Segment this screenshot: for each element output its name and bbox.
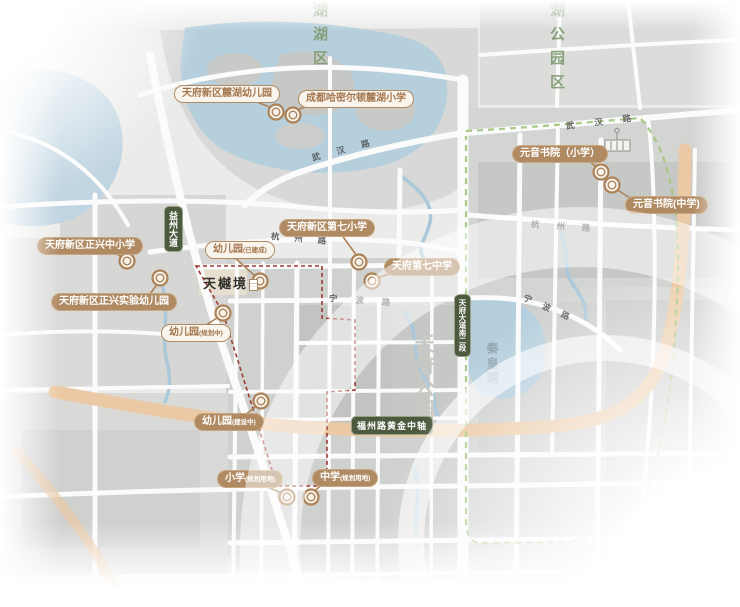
location-map: 湖湖区 湖公园区 天府公园 秦皇湖 益州大道 天府大道南二段 福州路黄金中轴 武… [0,0,740,607]
school-status: (规划用地) [340,475,370,482]
school-name: 成都哈密尔顿麓湖小学 [306,93,406,104]
school-marker [269,105,284,120]
school-status: (规划中) [199,330,223,337]
label-middle-planned-land: 中学(规划用地) [312,469,378,487]
school-name: 幼儿园 [169,327,199,338]
school-marker [216,306,231,321]
school-name: 元音书院（小学） [520,148,600,159]
label-luhu-kindergarten: 天府新区麓湖幼儿园 [174,85,280,103]
label-no7-primary: 天府新区第七小学 [279,219,375,237]
school-marker [594,165,609,180]
project-label: 天樾境 [203,273,258,292]
label-kindergarten-built: 幼儿园(已建成) [205,241,275,259]
project-name-text: 天樾境 [203,276,248,291]
school-name: 天府新区第七小学 [287,222,367,233]
school-marker [365,274,380,289]
road-pill-yizhou-avenue: 益州大道 [164,206,183,252]
school-name: 幼儿园 [213,244,243,255]
school-marker [280,490,295,505]
school-marker [286,108,301,123]
school-status: (规划用地) [245,476,275,483]
school-status: (建设中) [232,419,256,426]
district-label-park: 湖公园区 [546,2,567,98]
school-marker [254,394,269,409]
school-marker [605,178,620,193]
label-no7-middle: 天府第七中学 [384,258,460,276]
school-name: 天府新区麓湖幼儿园 [182,88,272,99]
school-name: 幼儿园 [202,416,232,427]
label-kindergarten-planned: 幼儿园(规划中) [161,324,231,342]
label-yuanyin-primary: 元音书院（小学） [512,145,608,163]
school-name: 天府新区正兴中小学 [45,240,135,251]
road-pill-fuzhou-axis: 福州路黄金中轴 [351,416,433,435]
school-status: (已建成) [243,247,267,254]
label-zhengxing-kindergarten: 天府新区正兴实验幼儿园 [51,293,177,311]
school-marker [153,271,168,286]
label-hamilton-primary: 成都哈密尔顿麓湖小学 [298,90,414,108]
school-name: 天府新区正兴实验幼儿园 [59,296,169,307]
project-logo-icon [249,279,258,291]
qinhuang-lake-label: 秦皇湖 [484,342,501,387]
school-name: 小学 [225,473,245,484]
school-name: 元音书院(中学) [633,199,700,210]
school-marker [304,490,319,505]
road-pill-tianfu-avenue: 天府大道南二段 [454,294,471,357]
school-name: 中学 [320,472,340,483]
district-label-lake: 湖湖区 [309,2,330,74]
label-yuanyin-middle: 元音书院(中学) [625,196,708,214]
label-primary-planned-land: 小学(规划用地) [217,470,283,488]
label-zhengxing-school: 天府新区正兴中小学 [37,237,143,255]
school-marker [120,254,135,269]
label-kindergarten-building: 幼儿园(建设中) [194,413,264,431]
school-name: 天府第七中学 [392,261,452,272]
school-marker [352,255,367,270]
tianfu-park-label: 天府公园 [408,333,437,421]
